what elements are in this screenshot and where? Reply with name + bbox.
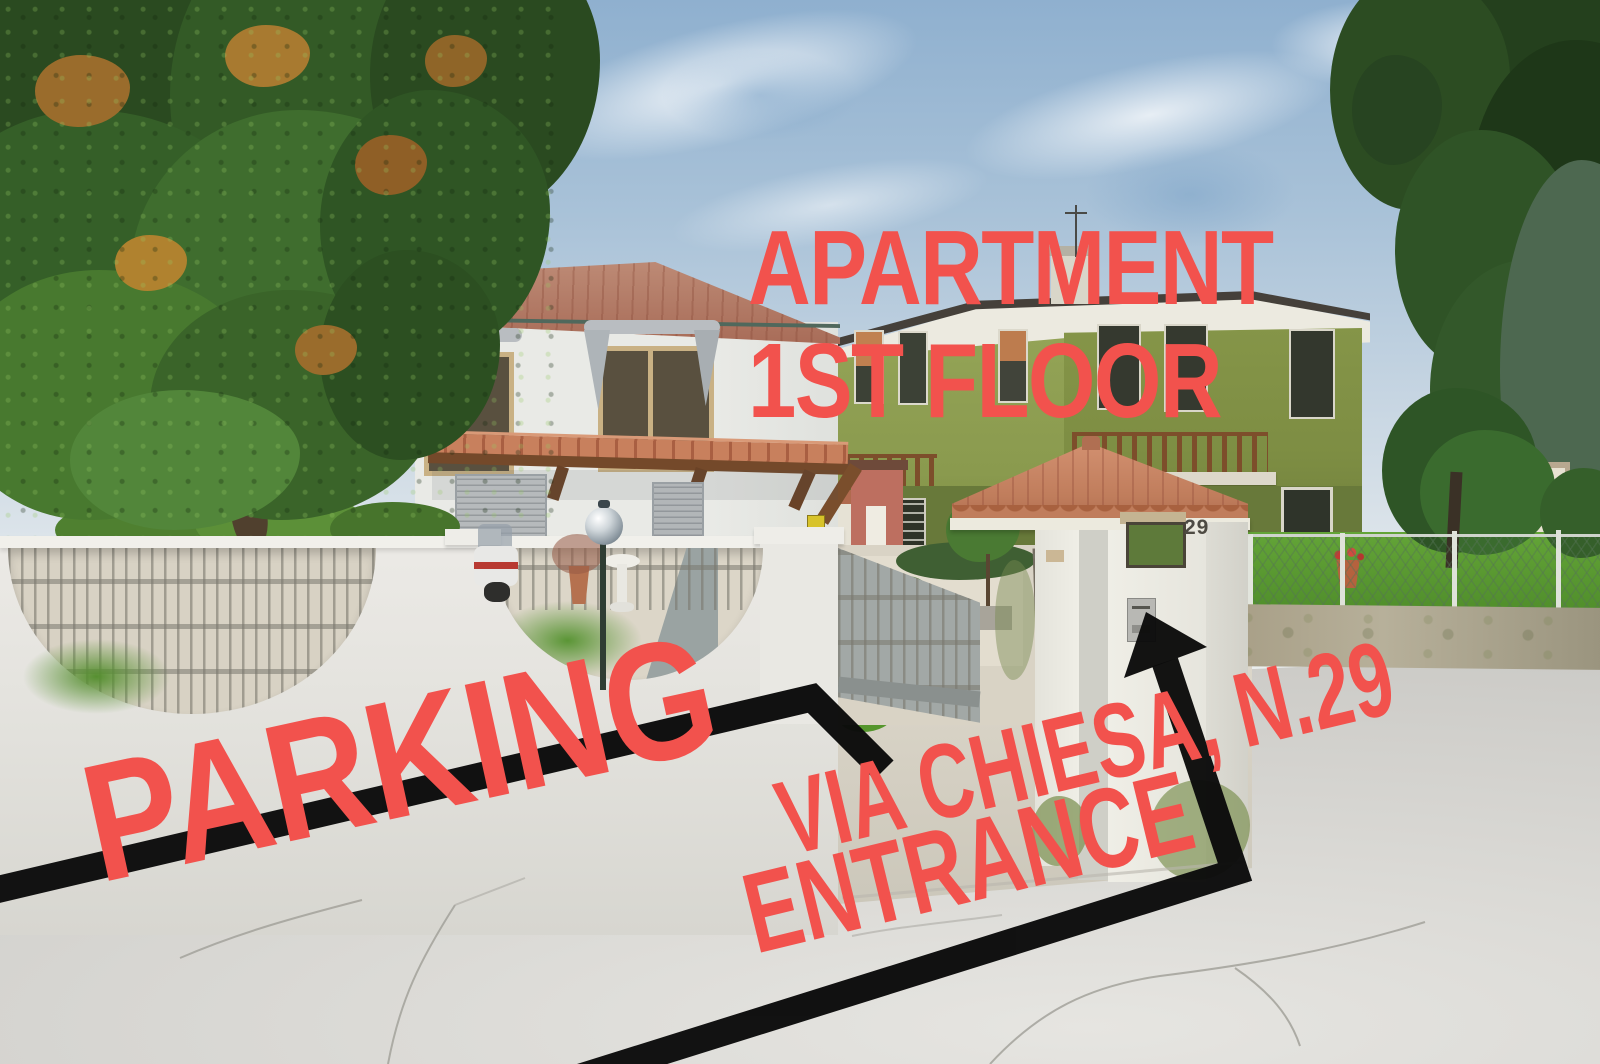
annotation-apartment-line1: APARTMENT [748, 212, 1272, 325]
photo-scene: 29 APARTMENT 1ST FLOOR PARKING VIA CHIES… [0, 0, 1600, 1064]
annotation-apartment-line2: 1ST FLOOR [748, 325, 1272, 438]
annotation-apartment: APARTMENT 1ST FLOOR [748, 212, 1272, 439]
